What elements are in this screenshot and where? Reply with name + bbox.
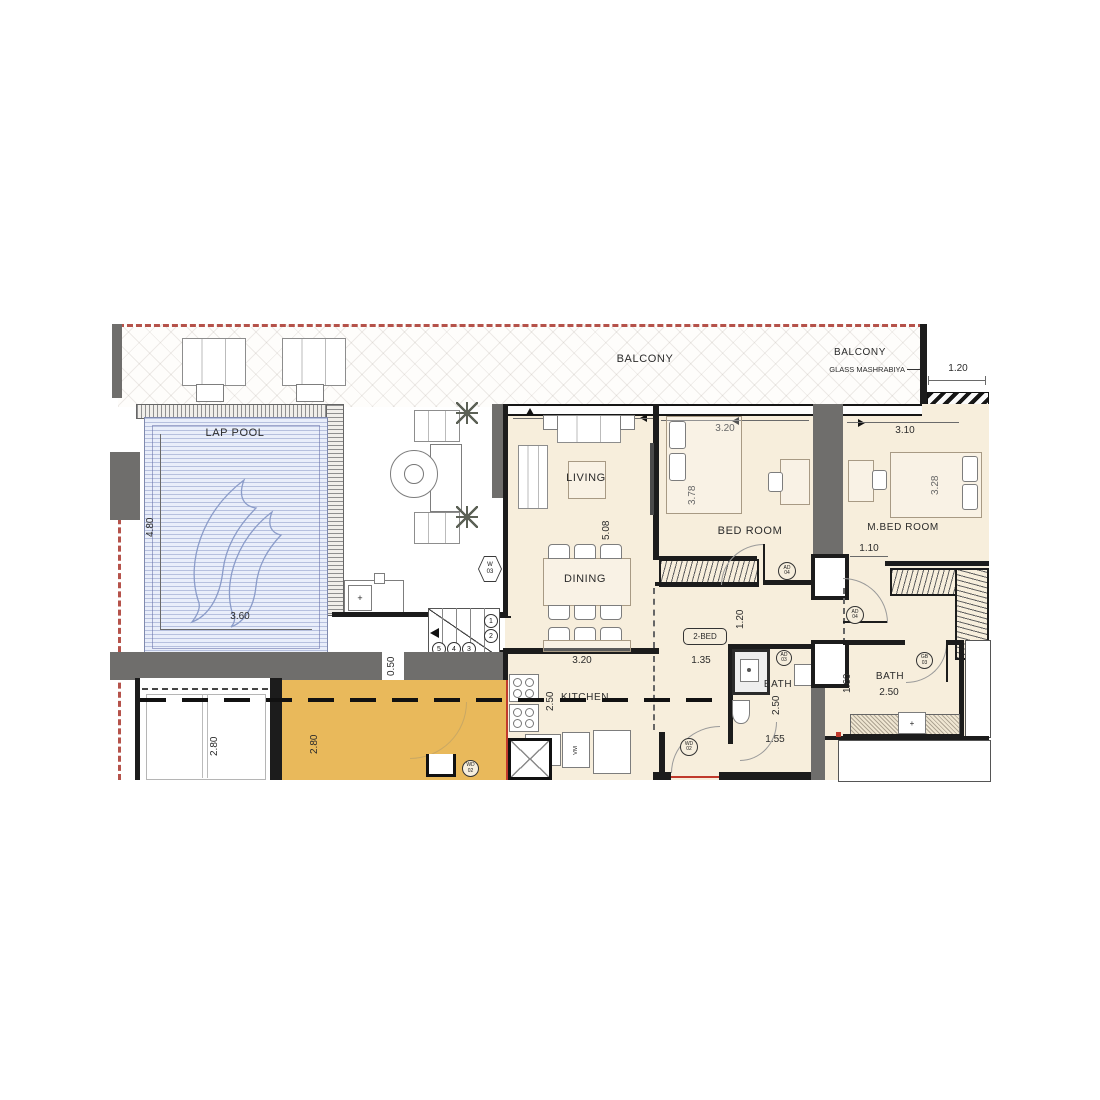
dining-label: DINING (560, 574, 610, 585)
pillow (962, 484, 978, 510)
wall-segment (885, 561, 989, 566)
sofa-armrest (620, 415, 635, 430)
pillow (669, 453, 686, 481)
wall-segment (811, 680, 825, 780)
unit-type-badge: 2-BED (683, 628, 727, 645)
window-swing-marker-icon (526, 408, 534, 415)
bedroom-label: BED ROOM (710, 526, 790, 537)
balcony-label: BALCONY (800, 348, 920, 358)
floor-plan-canvas: BALCONY BALCONY GLASS MASHRABIYA 1.20 LA… (0, 0, 1100, 1100)
burner (513, 719, 522, 728)
wall-segment (843, 640, 905, 645)
dining-chair (548, 544, 570, 559)
dining-chair (574, 605, 596, 620)
dim-bath-master-width: 2.50 (872, 688, 906, 698)
sofa (557, 415, 621, 443)
door-tag: GB 03 (916, 652, 933, 669)
side-table (196, 384, 224, 402)
door-tag: AD 04 (778, 562, 796, 580)
entry-arrow-icon (430, 628, 439, 638)
outdoor-armchair (414, 512, 460, 544)
dim-balcony-depth: 1.20 (932, 364, 984, 374)
washer: VM (562, 732, 590, 768)
door-tag-line2: 03 (922, 661, 928, 667)
door-tag: WD 02 (680, 738, 698, 756)
door-threshold (500, 616, 511, 618)
burner (513, 689, 522, 698)
dining-chair (600, 605, 622, 620)
toilet (732, 700, 750, 724)
washbasin: + (898, 712, 926, 734)
door-tag-line2: 04 (852, 615, 858, 621)
burner (513, 708, 522, 717)
sofa (518, 445, 548, 509)
pool-deck (326, 404, 344, 616)
plant-icon (456, 506, 478, 528)
stair-number: 1 (484, 614, 498, 628)
room-divider-line (207, 694, 208, 778)
dim-line (160, 434, 161, 630)
wall-segment (763, 580, 815, 585)
wall-segment (276, 678, 282, 780)
table-centerpiece (404, 464, 424, 484)
dining-chair (574, 544, 596, 559)
dim-hall-opening: 1.35 (683, 656, 719, 666)
dim-pool-width: 3.60 (210, 612, 270, 622)
floor-plan: BALCONY BALCONY GLASS MASHRABIYA 1.20 LA… (110, 322, 990, 782)
plant-icon (456, 402, 478, 424)
wall-segment (503, 404, 508, 618)
dim-master-width: 3.10 (885, 426, 925, 436)
wall-segment (112, 324, 122, 398)
dim-pool-length: 4.80 (146, 507, 156, 547)
wardrobe (890, 568, 962, 596)
wall-opening-dashed (653, 588, 658, 648)
wall-segment (135, 678, 140, 780)
window-tag-line2: 03 (487, 569, 494, 576)
stair-number: 2 (484, 629, 498, 643)
lounge-chair (182, 338, 246, 386)
service-shaft (838, 740, 991, 782)
room-divider-line (202, 694, 203, 778)
door-tag: AD 04 (846, 606, 864, 624)
faucet (374, 573, 385, 584)
unit-type-label: 2-BED (693, 633, 717, 641)
window-tag-line1: W (487, 562, 493, 569)
bath-label: BATH (758, 680, 798, 690)
wall-segment (653, 772, 671, 780)
outdoor-armchair (414, 410, 460, 442)
wall-segment (920, 324, 927, 404)
desk-chair (872, 470, 887, 490)
burner (525, 678, 534, 687)
bath-label: BATH (870, 672, 910, 682)
desk (780, 459, 810, 505)
door-tag-line2: 03 (781, 658, 787, 664)
dim-tick (985, 376, 986, 385)
pillow (962, 456, 978, 482)
balcony-label: BALCONY (565, 354, 725, 365)
lounge-chair (282, 338, 346, 386)
room-inner-line (146, 694, 266, 780)
burner (525, 689, 534, 698)
dim-line (928, 380, 986, 381)
desk-chair (768, 472, 783, 492)
boundary-line (506, 680, 508, 780)
fridge (593, 730, 631, 774)
door-tag: AD 03 (776, 650, 792, 666)
service-shaft (965, 640, 991, 738)
door-tag-line2: 02 (686, 747, 692, 753)
pillow (669, 421, 686, 449)
dining-chair (600, 627, 622, 641)
window-swing-marker-icon (858, 419, 865, 427)
master-bedroom-label: M.BED ROOM (865, 523, 941, 533)
washbasin (794, 664, 812, 686)
dim-living-length: 5.08 (602, 512, 612, 548)
glass-mashrabiya-label: GLASS MASHRABIYA (750, 366, 905, 374)
dim-wall-offset: 0.50 (387, 652, 397, 680)
window-dashed (142, 688, 268, 692)
dim-line (160, 629, 312, 630)
leader-line (907, 369, 921, 370)
lap-pool-label: LAP POOL (144, 428, 326, 439)
section-line (140, 698, 720, 702)
console (543, 640, 631, 652)
door-tag: WD 02 (462, 760, 479, 777)
washer-label: VM (573, 746, 579, 755)
dining-chair (574, 627, 596, 641)
door-leaf (946, 644, 948, 682)
tv-unit (650, 443, 654, 515)
side-table (296, 384, 324, 402)
wall-segment (813, 404, 843, 556)
desk (848, 460, 874, 502)
dining-chair (600, 544, 622, 559)
burner (513, 678, 522, 687)
dining-chair (548, 627, 570, 641)
burner (525, 719, 534, 728)
door-frame (426, 754, 456, 777)
dim-tick (928, 376, 929, 385)
wall-opening-dashed (653, 656, 658, 730)
door-tag-line2: 02 (468, 769, 474, 775)
dim-lower-room-left: 2.80 (210, 728, 220, 764)
wall-segment (110, 652, 508, 680)
burner (525, 708, 534, 717)
wall-segment (110, 452, 140, 520)
dim-bath-mid-depth: 2.50 (772, 690, 782, 720)
sink: + (348, 585, 372, 611)
boundary-line (118, 500, 124, 780)
dim-hall-width: 1.20 (736, 602, 746, 636)
wall-segment (719, 772, 815, 780)
corner-unit (508, 738, 552, 780)
dim-lower-room-right: 2.80 (310, 726, 320, 762)
dim-kitchen-width: 3.20 (562, 656, 602, 666)
drain-dot (747, 668, 751, 672)
living-label: LIVING (562, 473, 610, 484)
dim-line (847, 422, 959, 423)
dining-chair (548, 605, 570, 620)
dim-bath-master-depth: 1.60 (843, 668, 853, 698)
joint-marker (836, 732, 841, 737)
door-tag-line2: 04 (784, 571, 790, 577)
door-sill (671, 776, 719, 778)
sofa-armrest (543, 415, 558, 430)
dim-master-closet: 1.10 (850, 544, 888, 554)
door-leaf (763, 544, 765, 584)
dim-line (850, 556, 888, 557)
